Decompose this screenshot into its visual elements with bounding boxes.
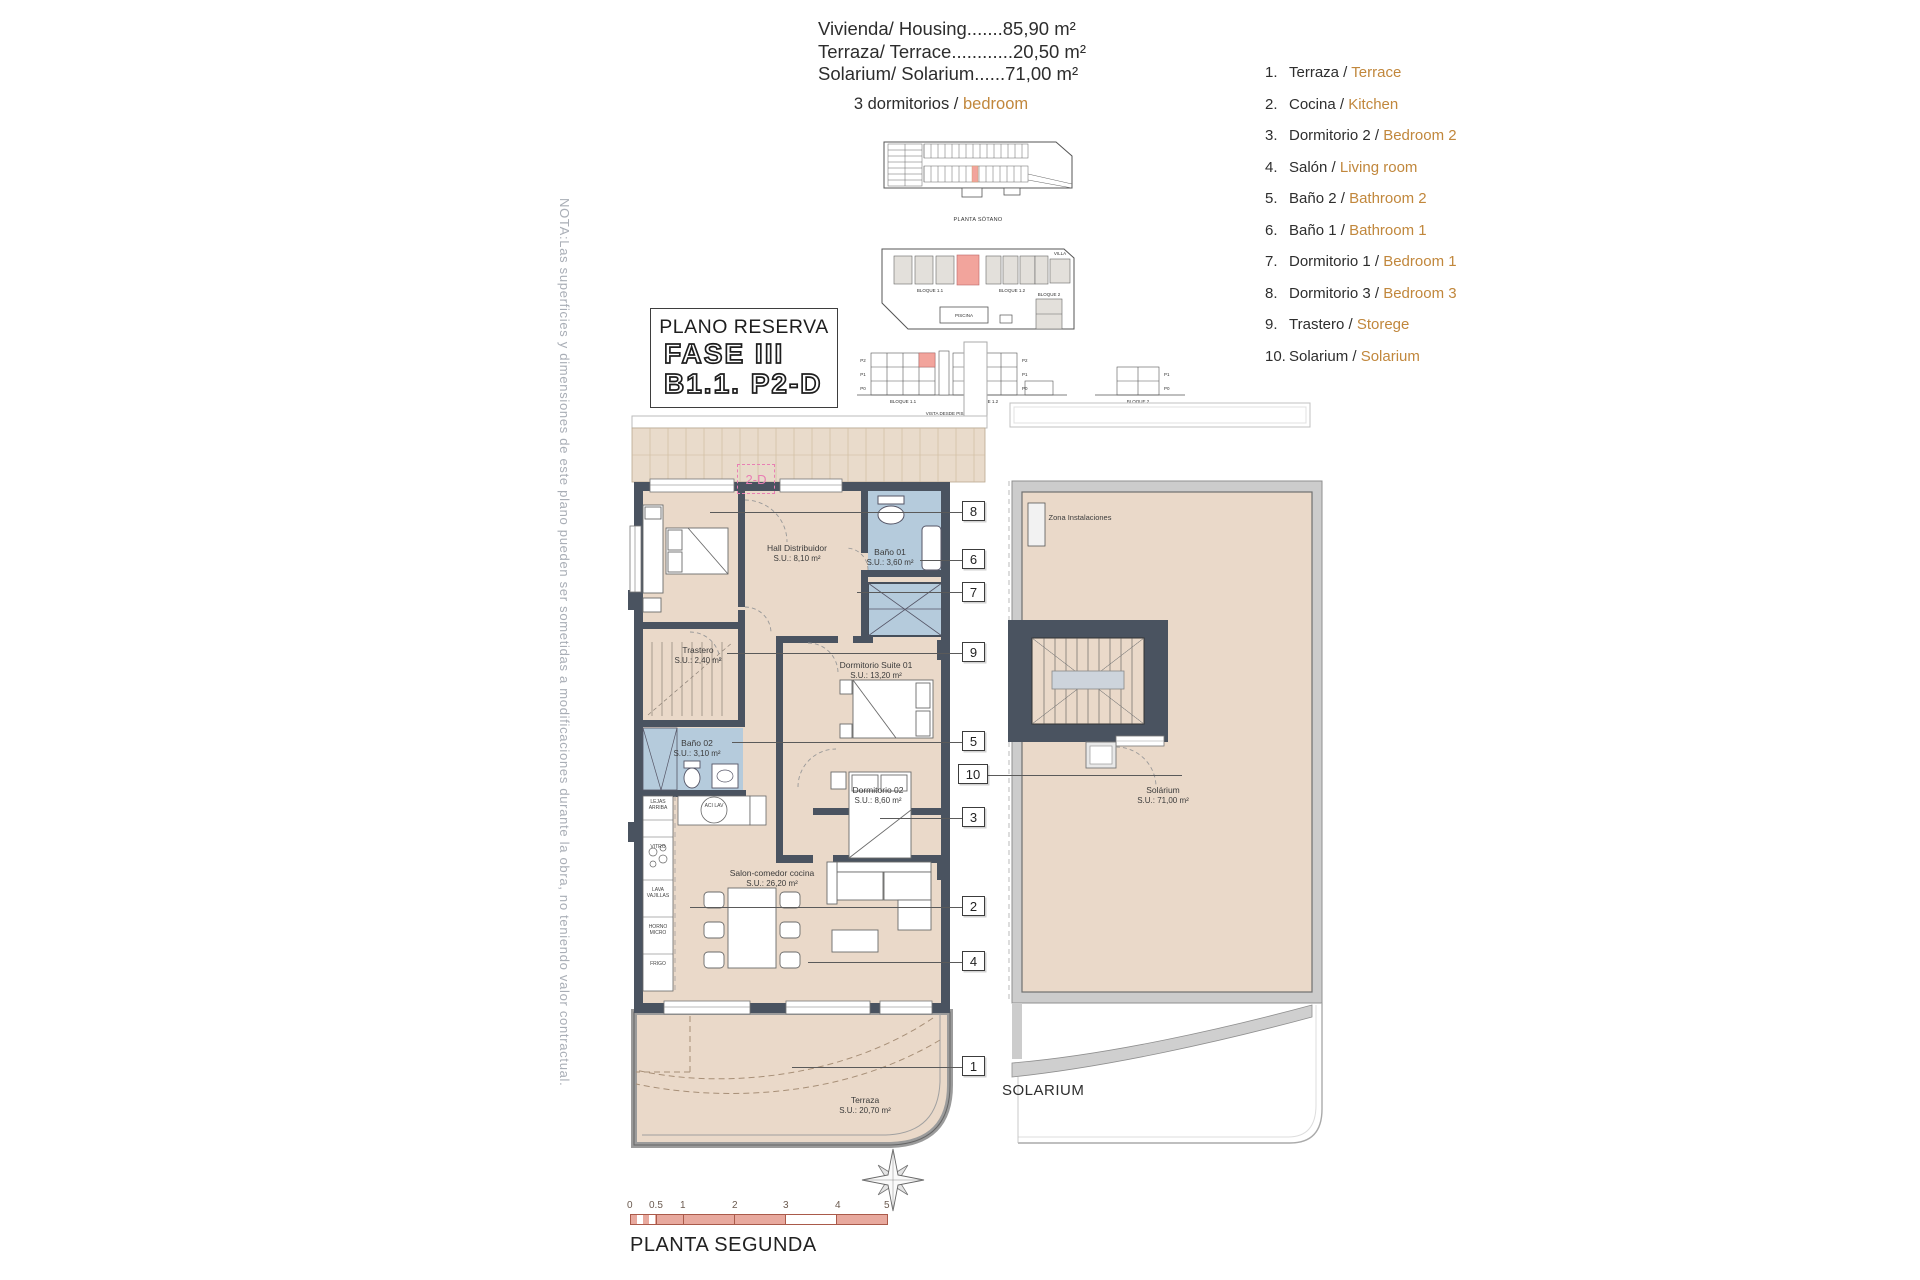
callout-8: 8 [962, 501, 985, 521]
callout-4: 4 [962, 951, 985, 971]
curved-roof-band [1012, 1005, 1312, 1077]
area-line-terrace: Terraza/ Terrace............20,50 m² [818, 41, 1078, 64]
legend-item-6: 6.Baño 1 / Bathroom 1 [1265, 222, 1427, 239]
area-line-housing: Vivienda/ Housing.......85,90 m² [818, 18, 1078, 41]
label-hall: Hall Distribuidor S.U.: 8,10 m² [762, 543, 832, 564]
bloque2-label: BLOQUE 2 [1038, 292, 1061, 297]
callout-7: 7 [962, 582, 985, 602]
legend-item-7: 7.Dormitorio 1 / Bedroom 1 [1265, 253, 1457, 270]
kitchen-label-lavavajillas: LAVA VAJILLAS [641, 888, 675, 899]
kitchen-label-acilav: ACI LAV [702, 804, 726, 810]
label-terraza: Terraza S.U.: 20,70 m² [815, 1095, 915, 1116]
callout-9: 9 [962, 642, 985, 662]
callout-line-3 [880, 818, 962, 819]
callout-6: 6 [962, 549, 985, 569]
scale-tick-3: 3 [783, 1200, 789, 1211]
bedrooms-line: 3 dormitorios / bedroom [806, 95, 1076, 114]
callout-line-2 [690, 907, 962, 908]
stairwell [1008, 620, 1168, 742]
label-bano2: Baño 02 S.U.: 3,10 m² [652, 738, 742, 759]
bedrooms-en: bedroom [963, 95, 1028, 113]
callout-3: 3 [962, 807, 985, 827]
floor-label-p0c: P0 [1164, 386, 1170, 391]
floor-label-p0b: P0 [1022, 386, 1028, 391]
planta-segunda-caption: PLANTA SEGUNDA [630, 1234, 817, 1257]
floor-label-p1c: P1 [1164, 372, 1170, 377]
label-trastero: Trastero S.U.: 2,40 m² [658, 645, 738, 666]
basement-caption: PLANTA SÓTANO [878, 217, 1078, 223]
site-diagram-siteplan: BLOQUE 1.1 BLOQUE 1.2 VILLA BLOQUE 2 PIS… [878, 243, 1078, 338]
kitchen-label-lejas: LEJAS ARRIBA [641, 800, 675, 811]
bloque11-label: BLOQUE 1.1 [917, 288, 944, 293]
elevation-grid-b2 [1117, 367, 1159, 395]
callout-line-8 [710, 512, 962, 513]
label-salon: Salon-comedor cocina S.U.: 26,20 m² [712, 868, 832, 889]
scale-tick-0: 0 [627, 1200, 633, 1211]
area-summary: Vivienda/ Housing.......85,90 m² Terraza… [818, 18, 1078, 86]
floor-plan-sheet: NOTA:Las superficies y dimensiones de es… [0, 0, 1920, 1280]
compass-rose-icon [858, 1145, 928, 1215]
legend-item-10: 10.Solarium / Solarium [1265, 348, 1420, 365]
legend-item-5: 5.Baño 2 / Bathroom 2 [1265, 190, 1427, 207]
callout-2: 2 [962, 896, 985, 916]
solarium-caption: SOLARIUM [1002, 1082, 1084, 1099]
scale-bar: 0 0.5 1 2 3 4 5 [630, 1200, 892, 1230]
area-line-solarium: Solarium/ Solarium......71,00 m² [818, 63, 1078, 86]
hatched-strip [632, 428, 985, 482]
callout-1: 1 [962, 1056, 985, 1076]
disclaimer-note: NOTA:Las superficies y dimensiones de es… [546, 198, 572, 1098]
callout-line-1 [792, 1067, 962, 1068]
label-suite: Dormitorio Suite 01 S.U.: 13,20 m² [826, 660, 926, 681]
legend-item-3: 3.Dormitorio 2 / Bedroom 2 [1265, 127, 1457, 144]
legend-item-4: 4.Salón / Living room [1265, 159, 1417, 176]
bloque-11-units [894, 256, 954, 284]
suite-furniture [840, 680, 933, 738]
site-diagram-basement [878, 132, 1078, 217]
callout-line-5 [732, 742, 962, 743]
callout-line-6 [920, 560, 962, 561]
kitchen-label-vitro: VITRO [641, 845, 675, 851]
label-dorm2: Dormitorio 02 S.U.: 8,60 m² [828, 785, 928, 806]
callout-line-7 [857, 592, 962, 593]
label-solarium: Solárium S.U.: 71,00 m² [1113, 785, 1213, 806]
callout-10: 10 [958, 764, 988, 784]
unit-tag: 2-D [737, 464, 775, 494]
legend-item-8: 8.Dormitorio 3 / Bedroom 3 [1265, 285, 1457, 302]
villa-label: VILLA [1054, 251, 1066, 256]
legend-item-2: 2.Cocina / Kitchen [1265, 96, 1398, 113]
label-bano1: Baño 01 S.U.: 3,60 m² [845, 547, 935, 568]
piscina-label: PISCINA [955, 313, 973, 318]
callout-line-9 [727, 653, 962, 654]
callout-5: 5 [962, 731, 985, 751]
scale-bar-segments [630, 1214, 888, 1225]
bloque-12-units [986, 256, 1048, 284]
kitchen-label-frigo: FRIGO [641, 962, 675, 968]
scale-tick-05: 0.5 [649, 1200, 663, 1211]
bedrooms-es: 3 dormitorios / [854, 95, 959, 113]
legend-item-9: 9.Trastero / Storege [1265, 316, 1409, 333]
highlighted-unit [957, 255, 979, 285]
callout-line-10 [988, 775, 1182, 776]
scale-tick-4: 4 [835, 1200, 841, 1211]
floor-label-p1b: P1 [1022, 372, 1028, 377]
label-zona-instalaciones: Zona Instalaciones [1048, 513, 1112, 522]
bloque12-label: BLOQUE 1.2 [999, 288, 1026, 293]
legend-item-1: 1.Terraza / Terrace [1265, 64, 1401, 81]
scale-tick-2: 2 [732, 1200, 738, 1211]
scale-tick-1: 1 [680, 1200, 686, 1211]
kitchen-label-horno: HORNO MICRO [641, 925, 675, 936]
reserva-title: PLANO RESERVA [651, 316, 837, 339]
terrace-area [634, 1012, 950, 1145]
callout-line-4 [808, 962, 962, 963]
equipment-box [1028, 503, 1045, 546]
highlighted-parking [972, 166, 978, 182]
floor-label-p2b: P2 [1022, 358, 1028, 363]
